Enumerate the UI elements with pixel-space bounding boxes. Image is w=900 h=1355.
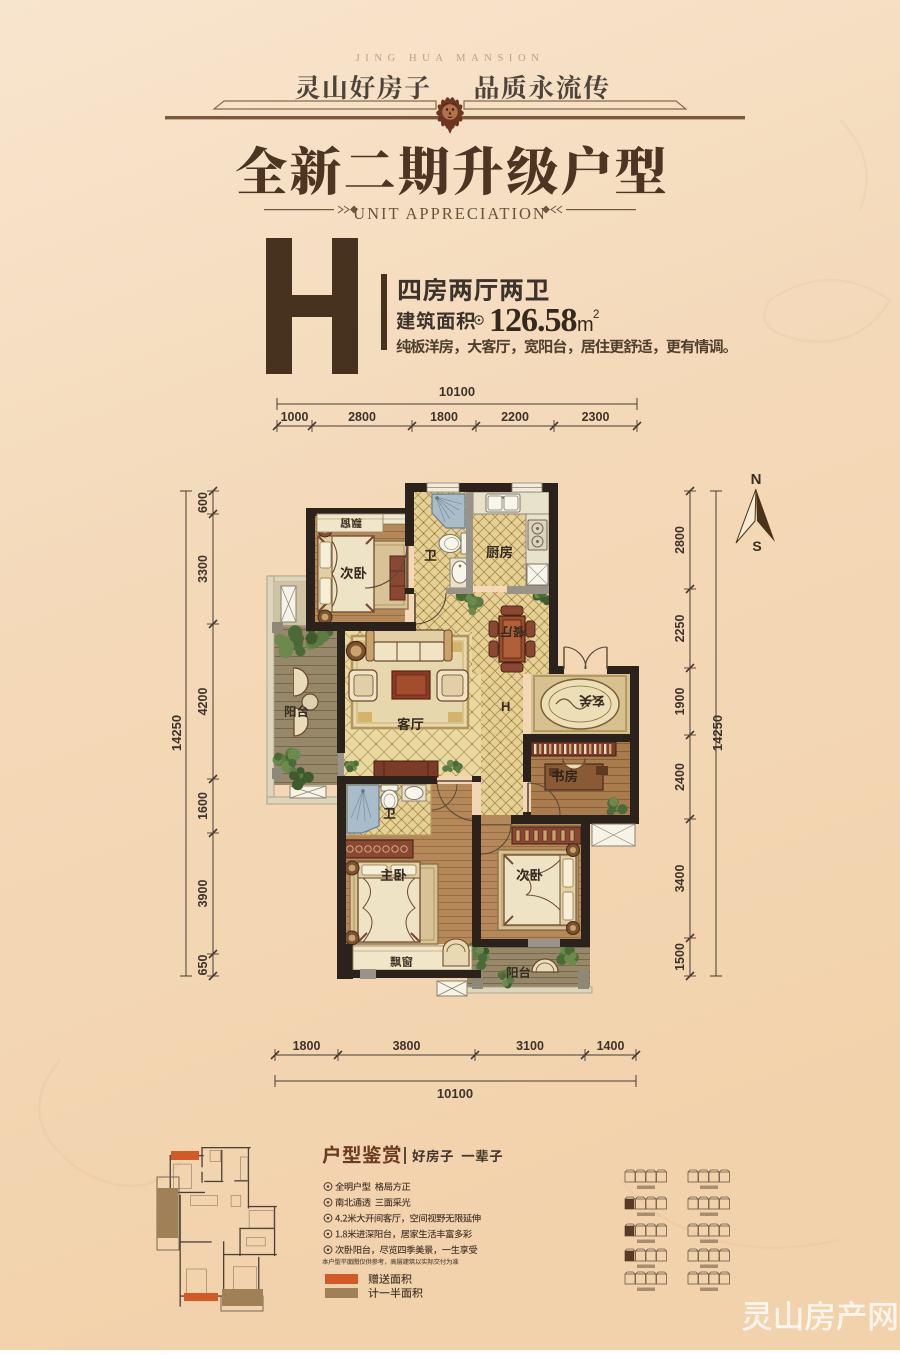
svg-text:2200: 2200: [501, 410, 529, 424]
svg-text:3400: 3400: [673, 865, 687, 893]
svg-text:m: m: [577, 314, 594, 336]
svg-text:JING HUA MANSION: JING HUA MANSION: [356, 53, 545, 64]
svg-text:126.58: 126.58: [489, 302, 577, 339]
svg-text:3800: 3800: [393, 1039, 421, 1053]
svg-text:10100: 10100: [439, 384, 475, 399]
svg-text:2300: 2300: [582, 410, 610, 424]
svg-text:1600: 1600: [196, 792, 210, 820]
svg-text:3900: 3900: [196, 880, 210, 908]
svg-text:1000: 1000: [281, 410, 309, 424]
svg-text:14250: 14250: [169, 715, 184, 751]
svg-text:H: H: [501, 699, 510, 714]
svg-text:1500: 1500: [673, 943, 687, 971]
svg-text:3100: 3100: [516, 1039, 544, 1053]
svg-text:2800: 2800: [348, 410, 376, 424]
svg-text:1800: 1800: [430, 410, 458, 424]
svg-text:1800: 1800: [293, 1039, 321, 1053]
svg-text:3300: 3300: [196, 555, 210, 583]
svg-text:UNIT APPRECIATION: UNIT APPRECIATION: [353, 204, 547, 223]
svg-text:N: N: [751, 471, 762, 488]
svg-text:650: 650: [196, 955, 210, 976]
svg-text:2250: 2250: [673, 615, 687, 643]
svg-text:2400: 2400: [673, 763, 687, 791]
svg-text:4200: 4200: [196, 688, 210, 716]
svg-text:2: 2: [593, 309, 599, 321]
svg-text:600: 600: [196, 492, 210, 513]
svg-text:1400: 1400: [597, 1039, 625, 1053]
svg-text:S: S: [752, 538, 761, 554]
svg-text:10100: 10100: [437, 1086, 473, 1101]
svg-text:14250: 14250: [710, 715, 725, 751]
svg-text:2800: 2800: [673, 526, 687, 554]
svg-text:1900: 1900: [673, 688, 687, 716]
